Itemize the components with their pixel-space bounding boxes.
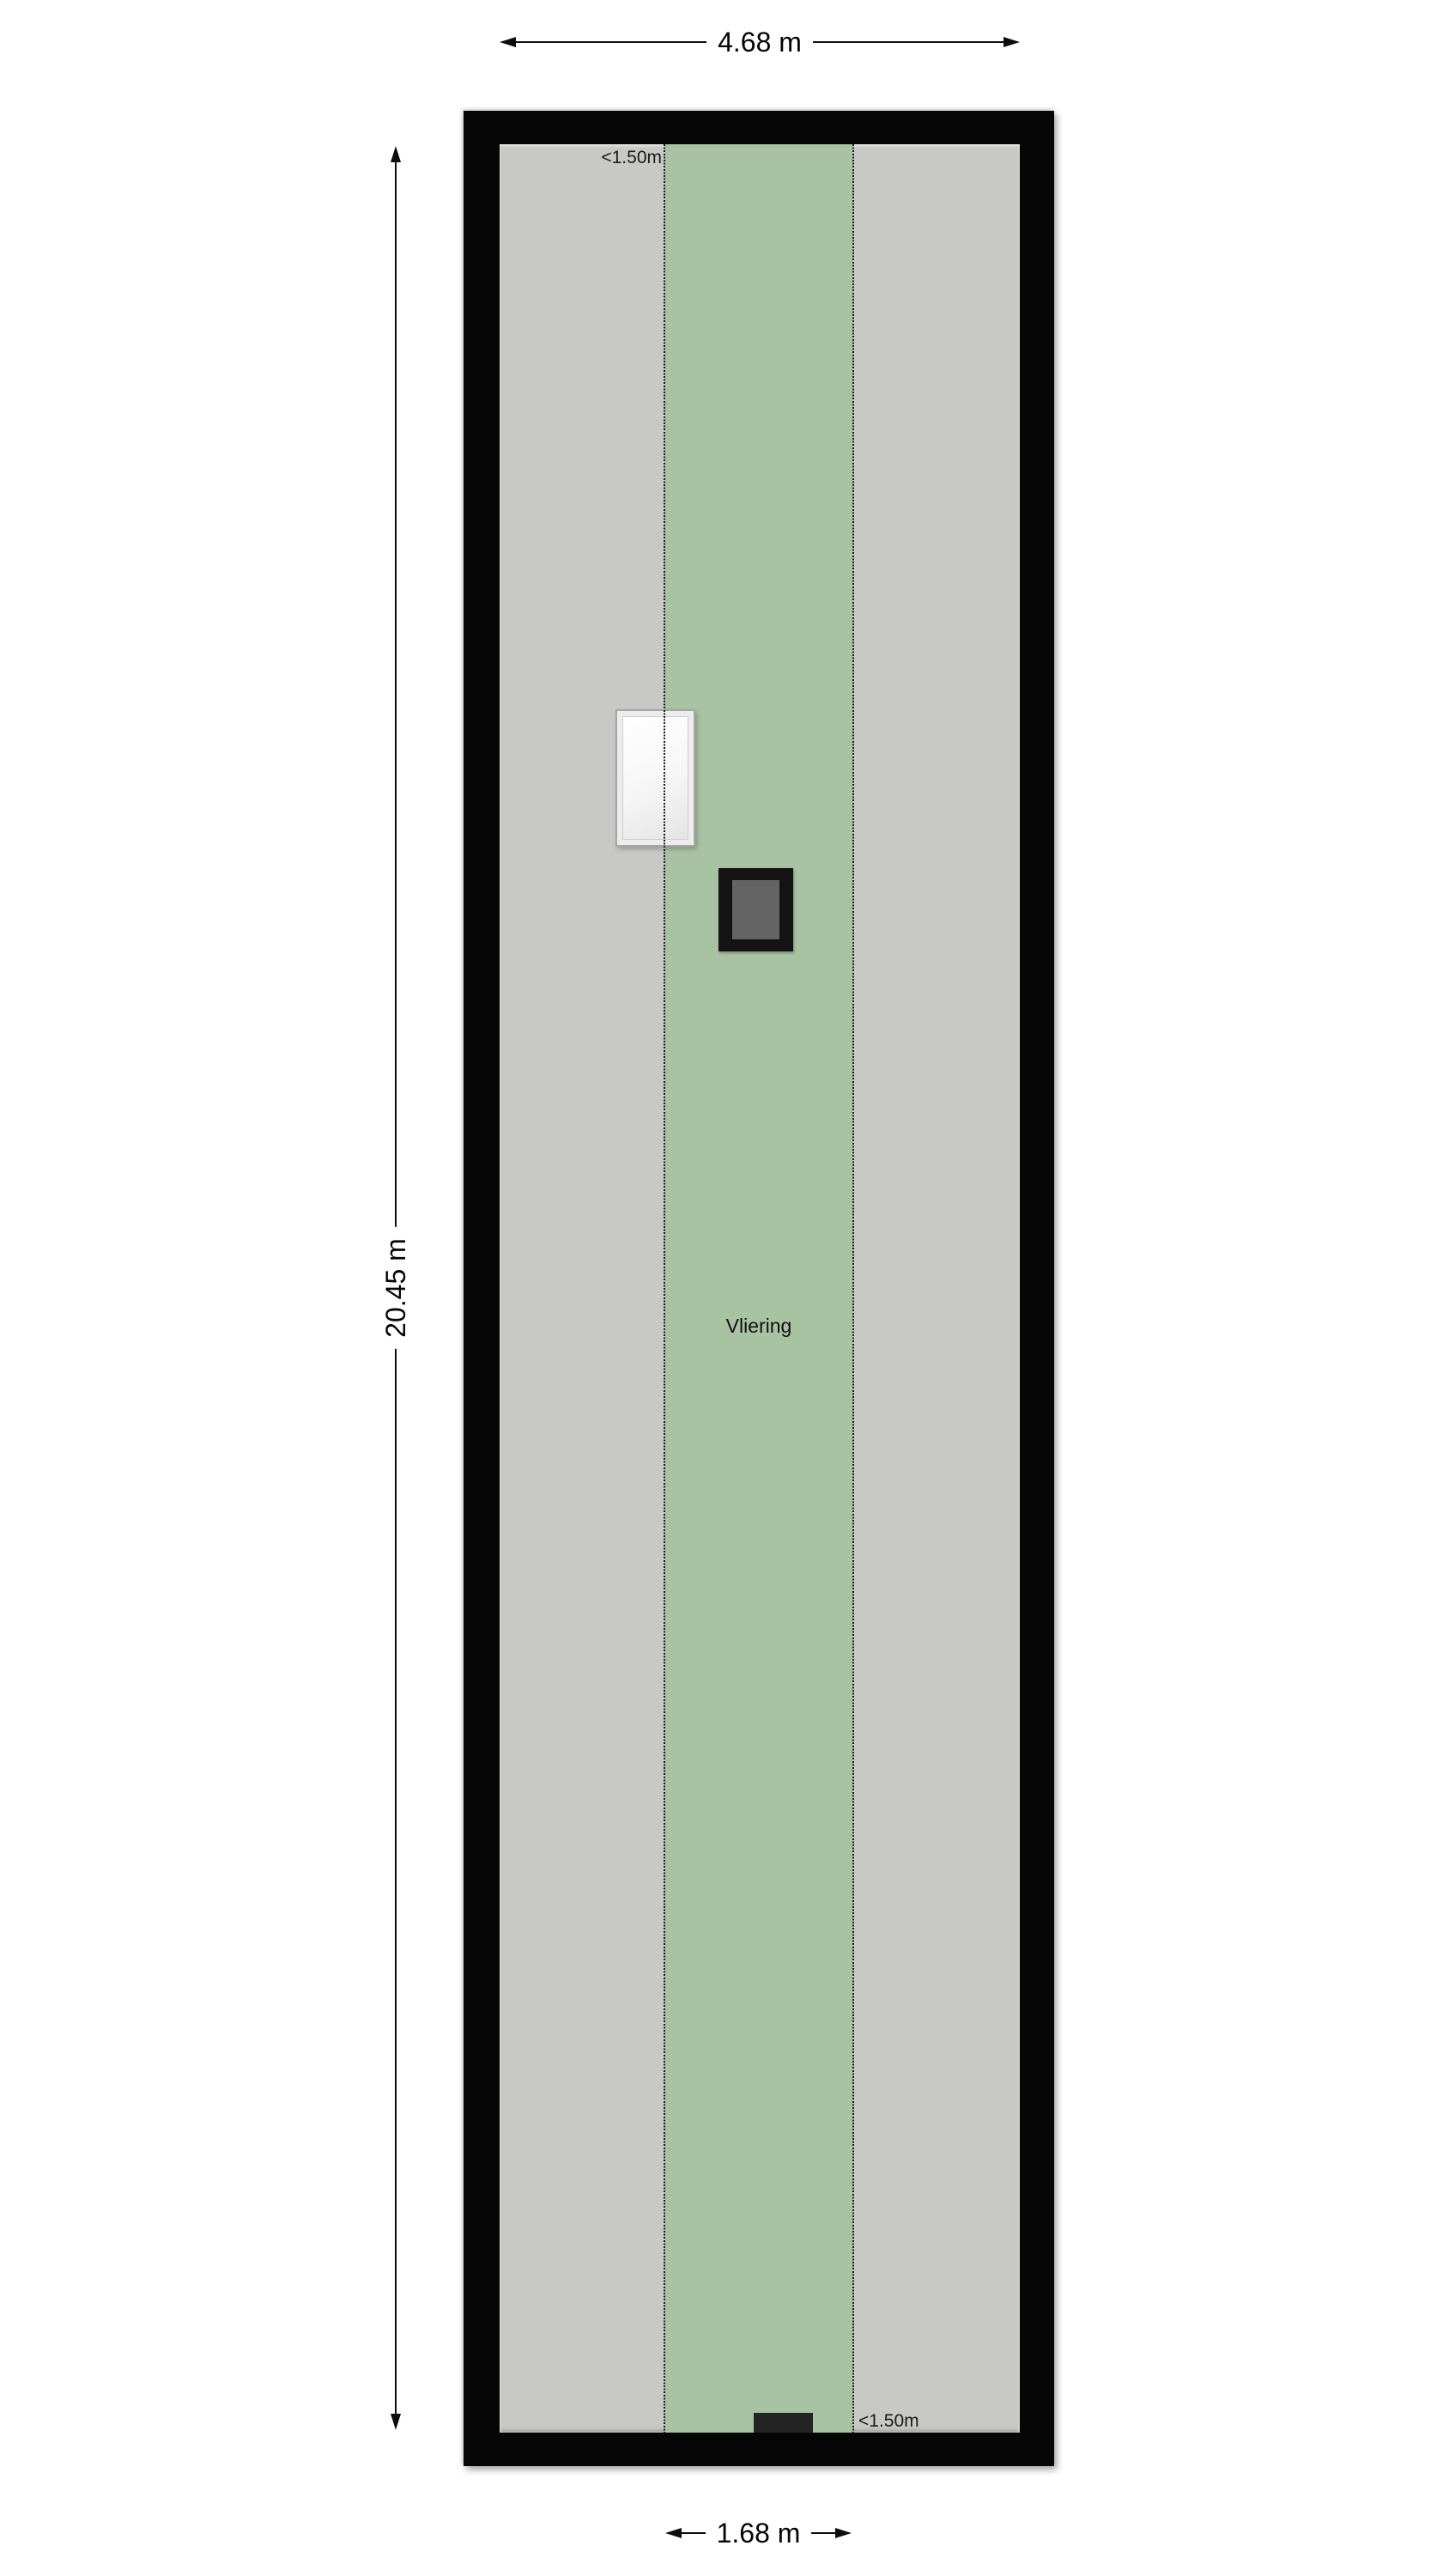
attic-floor-plan: <1.50m <1.50m Vliering — [464, 111, 1054, 2466]
dimension-strip-width: 1.68 m — [665, 2518, 852, 2549]
arrowhead-down-icon — [391, 2414, 401, 2430]
room-label: Vliering — [664, 1315, 853, 1338]
dimension-overall-width-label: 4.68 m — [706, 27, 813, 58]
floorplan-canvas: 4.68 m 20.45 m 1.68 m <1.50m <1.50m Vlie… — [0, 0, 1449, 2576]
clearance-label-bottom: <1.50m — [858, 2411, 919, 2432]
full-headroom-zone — [664, 144, 853, 2433]
skylight-roof-window — [718, 868, 793, 951]
arrowhead-left-icon — [665, 2528, 682, 2538]
headroom-boundary-left — [664, 144, 665, 2433]
clearance-label-top: <1.50m — [500, 148, 662, 168]
arrowhead-right-icon — [1003, 37, 1020, 47]
window-glass — [622, 716, 688, 840]
window — [615, 709, 695, 847]
floor-area: <1.50m <1.50m Vliering — [500, 144, 1020, 2433]
arrowhead-up-icon — [391, 146, 401, 162]
chimney-hatch-block — [754, 2413, 813, 2433]
dimension-overall-height-label: 20.45 m — [380, 1227, 411, 1349]
arrowhead-left-icon — [500, 37, 516, 47]
dimension-strip-width-label: 1.68 m — [706, 2518, 812, 2549]
dimension-overall-width: 4.68 m — [500, 27, 1020, 58]
arrowhead-right-icon — [835, 2528, 852, 2538]
headroom-boundary-right — [852, 144, 854, 2433]
dimension-overall-height: 20.45 m — [380, 146, 411, 2430]
